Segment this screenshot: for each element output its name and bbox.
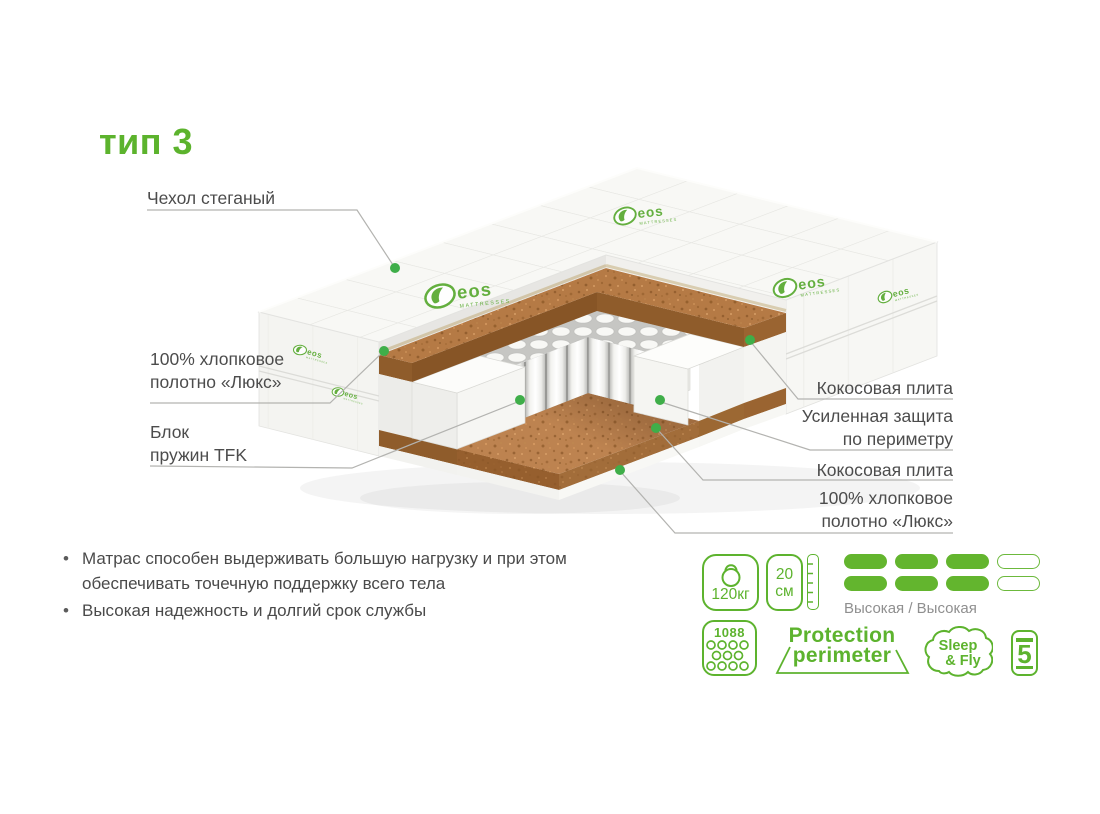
callout-cotton-left-line2: полотно «Люкс» [150, 371, 284, 394]
marker-dot-cotton-right [615, 465, 625, 475]
ruler-icon [807, 554, 819, 610]
firmness-bar-empty [997, 576, 1040, 591]
callout-coco-plate-bottom: Кокосовая плита [817, 459, 953, 482]
feature-item: Матрас способен выдерживать большую нагр… [60, 546, 595, 596]
callout-perimeter: Усиленная защита по периметру [802, 405, 953, 451]
callout-cover: Чехол стеганый [147, 187, 275, 210]
sleep-and-fly-logo: Sleep & Fly [923, 626, 993, 678]
firmness-bar-filled [844, 576, 887, 591]
marker-dot-cotton-left [379, 346, 389, 356]
marker-dot-perimeter [655, 395, 665, 405]
height-value: 20 [776, 566, 793, 583]
kettlebell-icon [716, 562, 746, 588]
firmness-bar-filled [895, 576, 938, 591]
height-unit: см [775, 583, 793, 600]
callout-spring-block: Блок пружин TFK [150, 421, 247, 467]
firmness-bar-filled [946, 576, 989, 591]
callout-perimeter-line2: по периметру [802, 428, 953, 451]
leader-line-cover [147, 210, 395, 268]
specs-panel: 120кг 20 см Высокая / Высокая 1088 [690, 545, 1070, 700]
firmness-bar-empty [997, 554, 1040, 569]
height-badge: 20 см [766, 554, 803, 611]
springs-count-badge: 1088 [702, 620, 757, 676]
firmness-label: Высокая / Высокая [844, 600, 977, 617]
features-list: Матрас способен выдерживать большую нагр… [60, 546, 595, 623]
callout-coco-plate-bottom-text: Кокосовая плита [817, 459, 953, 482]
firmness-bar-filled [895, 554, 938, 569]
brand-line2: & Fly [945, 653, 980, 669]
marker-dot-coco-top [745, 335, 755, 345]
callout-spring-block-line2: пружин TFK [150, 444, 247, 467]
callout-coco-plate-top: Кокосовая плита [817, 377, 953, 400]
marker-dot-springs [515, 395, 525, 405]
warranty-years: 5 [1017, 642, 1031, 666]
callout-perimeter-line1: Усиленная защита [802, 405, 953, 428]
marker-dot-coco-bottom [651, 423, 661, 433]
feature-item: Высокая надежность и долгий срок службы [60, 598, 595, 623]
callout-coco-plate-top-text: Кокосовая плита [817, 377, 953, 400]
max-weight-badge: 120кг [702, 554, 759, 611]
protection-trapezoid-icon [767, 627, 917, 682]
springs-count-value: 1088 [704, 625, 755, 640]
max-weight-value: 120кг [711, 586, 749, 604]
brand-line1: Sleep [939, 638, 978, 654]
callout-cotton-right-line2: полотно «Люкс» [819, 510, 953, 533]
springs-dots-icon [704, 640, 755, 672]
firmness-bar-filled [844, 554, 887, 569]
firmness-bar-filled [946, 554, 989, 569]
warranty-badge: 5 [1011, 630, 1038, 676]
callout-cotton-right: 100% хлопковое полотно «Люкс» [819, 487, 953, 533]
infographic-page: тип 3 [0, 0, 1100, 814]
marker-dot-cover [390, 263, 400, 273]
warranty-bottom-bar [1016, 666, 1033, 669]
callout-cotton-left: 100% хлопковое полотно «Люкс» [150, 348, 284, 394]
callout-cotton-left-line1: 100% хлопковое [150, 348, 284, 371]
callout-cotton-right-line1: 100% хлопковое [819, 487, 953, 510]
callout-cover-text: Чехол стеганый [147, 187, 275, 210]
callout-spring-block-line1: Блок [150, 421, 247, 444]
